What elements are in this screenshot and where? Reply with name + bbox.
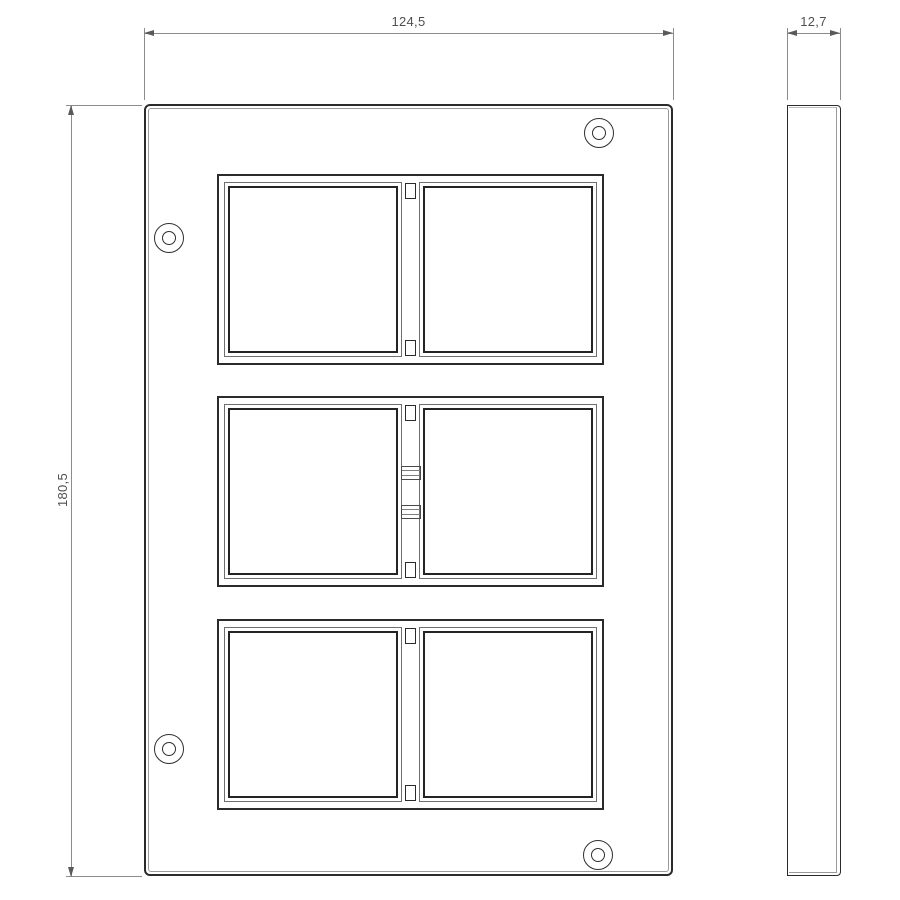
- screw-hole-bottom-left: [154, 734, 184, 764]
- dimension-label-front-height: 180,5: [55, 460, 71, 520]
- latch-slot-bottom: [405, 785, 416, 801]
- module-frame-row-3: [217, 619, 604, 810]
- dimension-line-front-height: [71, 105, 72, 877]
- coupler-line: [402, 514, 420, 515]
- module-opening: [419, 404, 597, 579]
- module-opening-window: [228, 186, 398, 353]
- center-coupler-lower: [401, 505, 421, 519]
- module-opening: [224, 627, 402, 802]
- dimension-arrow-icon: [787, 30, 797, 36]
- dimension-line-front-width: [144, 33, 673, 34]
- dimension-arrow-icon: [663, 30, 673, 36]
- side-view-plate-outline: [787, 105, 841, 876]
- front-view-plate-outline: [144, 104, 673, 876]
- center-coupler-upper: [401, 466, 421, 480]
- screw-hole-inner-circle: [592, 126, 606, 140]
- module-opening-window: [228, 631, 398, 798]
- dimension-arrow-icon: [144, 30, 154, 36]
- extension-line: [66, 876, 142, 877]
- latch-slot-top: [405, 183, 416, 199]
- module-opening-window: [423, 408, 593, 575]
- module-opening: [419, 627, 597, 802]
- latch-slot-top: [405, 405, 416, 421]
- screw-hole-inner-circle: [162, 742, 176, 756]
- technical-drawing-canvas: 124,5 12,7 180,5: [0, 0, 900, 900]
- module-opening: [419, 182, 597, 357]
- latch-slot-bottom: [405, 562, 416, 578]
- coupler-line: [402, 470, 420, 471]
- module-opening: [224, 182, 402, 357]
- screw-hole-inner-circle: [162, 231, 176, 245]
- latch-slot-top: [405, 628, 416, 644]
- coupler-line: [402, 509, 420, 510]
- screw-hole-top-right: [584, 118, 614, 148]
- module-frame-row-1: [217, 174, 604, 365]
- screw-hole-top-left: [154, 223, 184, 253]
- module-opening-window: [228, 408, 398, 575]
- module-opening: [224, 404, 402, 579]
- module-frame-row-2: [217, 396, 604, 587]
- screw-hole-bottom-right: [583, 840, 613, 870]
- screw-hole-inner-circle: [591, 848, 605, 862]
- coupler-line: [402, 475, 420, 476]
- dimension-arrow-icon: [68, 105, 74, 115]
- module-opening-window: [423, 186, 593, 353]
- dimension-arrow-icon: [68, 867, 74, 877]
- extension-line: [787, 28, 788, 100]
- latch-slot-bottom: [405, 340, 416, 356]
- dimension-arrow-icon: [830, 30, 840, 36]
- dimension-label-side-thickness: 12,7: [787, 14, 840, 30]
- side-view-bevel-line: [789, 107, 837, 873]
- extension-line: [66, 105, 142, 106]
- dimension-label-front-width: 124,5: [144, 14, 673, 30]
- extension-line: [840, 28, 841, 100]
- extension-line: [144, 28, 145, 100]
- extension-line: [673, 28, 674, 100]
- module-opening-window: [423, 631, 593, 798]
